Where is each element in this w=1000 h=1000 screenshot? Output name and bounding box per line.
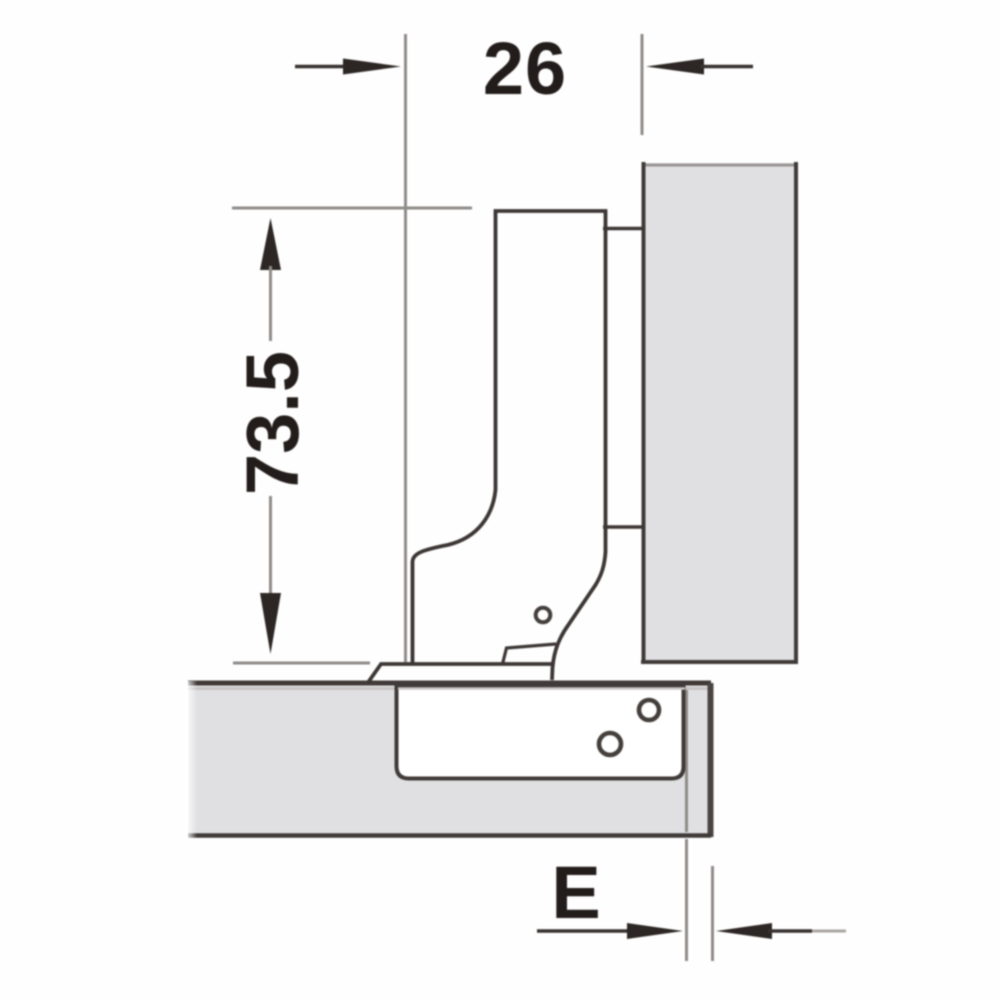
svg-text:73.5: 73.5 xyxy=(231,351,314,495)
svg-text:26: 26 xyxy=(483,27,567,110)
svg-text:E: E xyxy=(551,851,600,934)
